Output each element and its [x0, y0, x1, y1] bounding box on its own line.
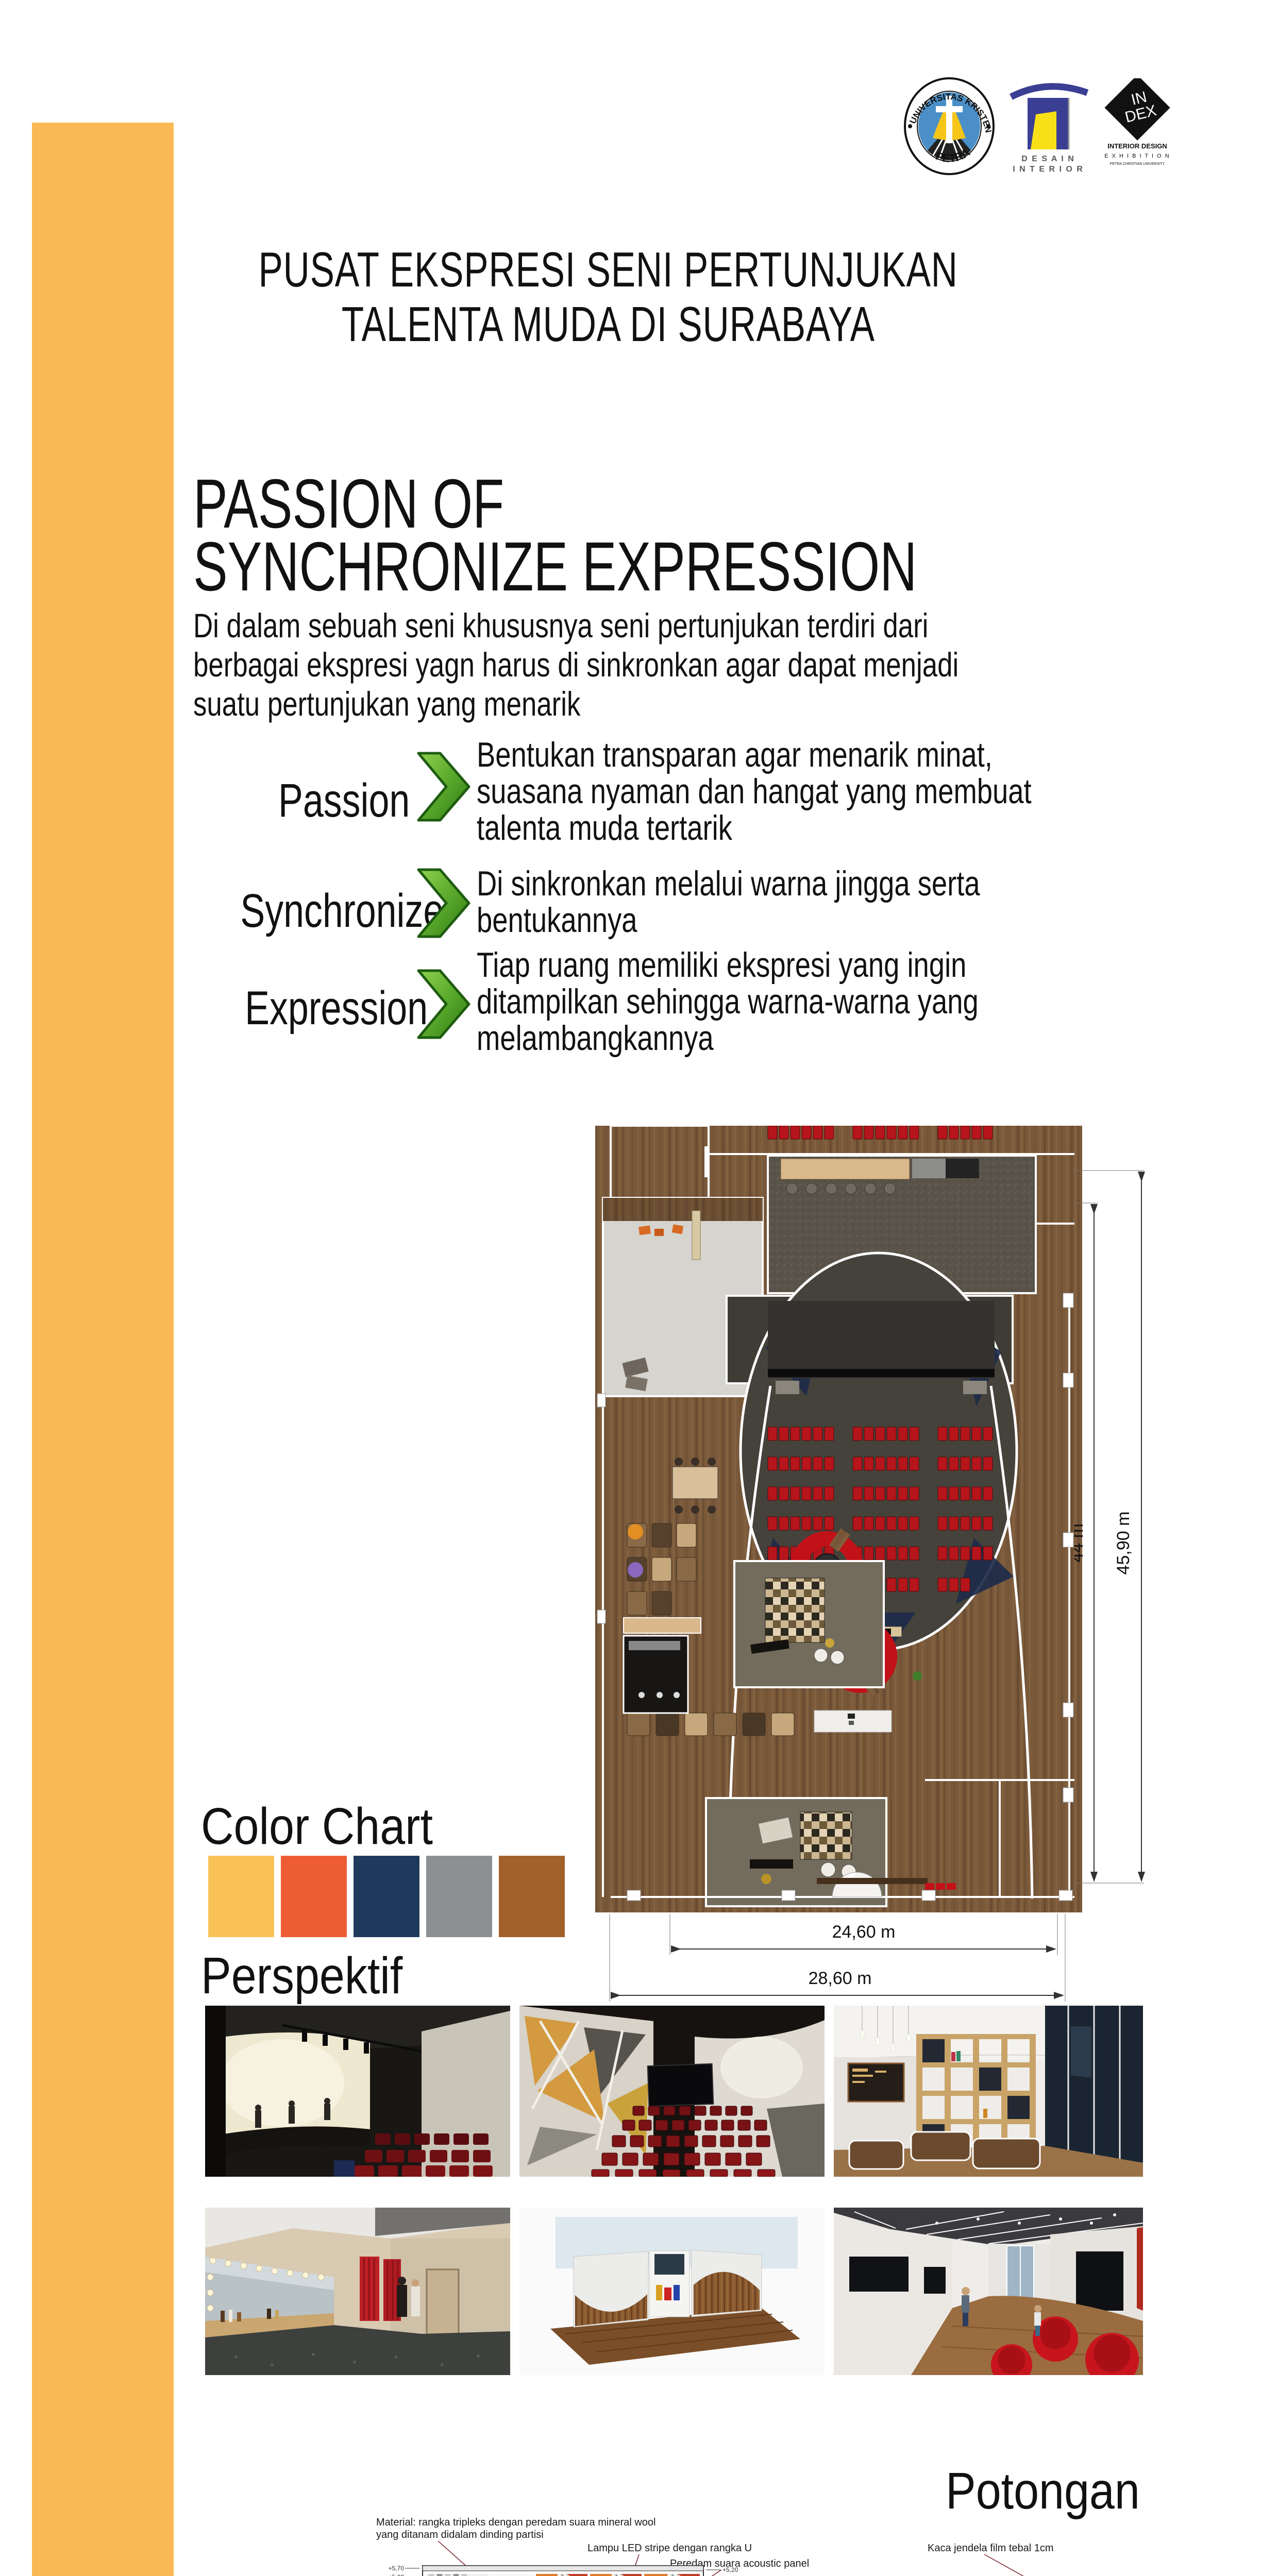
main-title-line2: TALENTA MUDA DI SURABAYA: [0, 298, 1216, 351]
annotation-led: Lampu LED stripe dengan rangka U: [587, 2543, 752, 2554]
logo-desain-interior: D E S A I N I N T E R I O R: [1006, 77, 1091, 175]
floorplan-svg: [595, 1126, 1082, 1912]
plan-practice-room-1: [734, 1561, 884, 1687]
logo-petra: UNIVERSITAS KRISTEN PETRA: [903, 76, 996, 177]
floorplan-dims-right: 44 m 45,90 m: [1074, 1126, 1208, 1929]
plan-purple-ball: [628, 1562, 643, 1578]
item-desc-synchronize-1: Di sinkronkan melalui warna jingga serta: [477, 866, 1106, 902]
floorplan-image: [595, 1126, 1082, 1912]
item-label-passion: Passion: [193, 774, 410, 828]
swatch-orange: [281, 1856, 347, 1937]
plan-entry-band: [817, 1878, 928, 1884]
chevron-arrow-icon: [415, 867, 472, 942]
item-desc-passion-2: suasana nyaman dan hangat yang membuat: [477, 773, 1170, 810]
petra-logo-icon: UNIVERSITAS KRISTEN PETRA: [903, 76, 996, 177]
concept-intro-line2: berbagai ekspresi yagn harus di sinkronk…: [193, 645, 1150, 684]
swatch-gray: [426, 1856, 492, 1937]
concept-intro-line1: Di dalam sebuah seni khususnya seni pert…: [193, 606, 1112, 645]
dim-24-60m: 24,60 m: [832, 1922, 896, 1942]
swatch-yellow: [208, 1856, 274, 1937]
color-chart-heading: Color Chart: [201, 1797, 464, 1856]
index-line1: INTERIOR DESIGN: [1107, 142, 1167, 150]
logo-index: IN DEX INTERIOR DESIGN E X H I B I T I O…: [1103, 78, 1172, 174]
annotation-material-1: Material: rangka tripleks dengan peredam…: [376, 2517, 656, 2528]
index-line3: PETRA CHRISTIAN UNIVERSITY: [1110, 162, 1165, 166]
potongan-sections: Material: rangka tripleks dengan peredam…: [361, 2504, 1278, 2576]
concept-heading-line2: SYNCHRONIZE EXPRESSION: [193, 536, 1171, 598]
desain-line2: I N T E R I O R: [1013, 165, 1084, 174]
annotation-material-2: yang ditanam didalam dinding partisi: [376, 2529, 544, 2540]
index-logo-icon: IN DEX INTERIOR DESIGN E X H I B I T I O…: [1103, 78, 1172, 174]
concept-heading-line1: PASSION OF: [193, 473, 613, 535]
item-desc-passion-1: Bentukan transparan agar menarik minat,: [477, 737, 1121, 773]
perspective-image-2: [519, 2006, 825, 2177]
floorplan-dims-bottom: 24,60 m 28,60 m: [595, 1914, 1183, 2009]
perspective-image-4: [205, 2208, 510, 2375]
item-desc-expression-1: Tiap ruang memiliki ekspresi yang ingin: [477, 947, 1089, 984]
perspektif-heading: Perspektif: [201, 1946, 430, 2006]
annotation-kaca: Kaca jendela film tebal 1cm: [928, 2543, 1054, 2554]
item-desc-expression-2: ditampilkan sehingga warna-warna yang: [477, 984, 1104, 1020]
perspective-image-3: [834, 2006, 1143, 2177]
plan-dining-table: [672, 1467, 718, 1499]
color-chart-swatches: [208, 1856, 574, 1937]
perspective-image-6: [834, 2208, 1143, 2375]
potongan-svg: Material: rangka tripleks dengan peredam…: [361, 2504, 1278, 2576]
swatch-navy: [354, 1856, 419, 1937]
chevron-arrow-icon: [415, 750, 472, 826]
item-desc-synchronize-2: bentukannya: [477, 902, 677, 939]
item-desc-expression-3: melambangkannya: [477, 1020, 773, 1057]
item-label-synchronize: Synchronize: [183, 884, 410, 938]
chevron-arrow-icon: [415, 968, 472, 1043]
concept-intro-line3: suatu pertunjukan yang menarik: [193, 684, 677, 723]
index-line2: E X H I B I T I O N: [1104, 153, 1170, 159]
dim-28-60m: 28,60 m: [809, 1969, 872, 1988]
desain-interior-logo-icon: D E S A I N I N T E R I O R: [1006, 77, 1091, 175]
desain-line1: D E S A I N: [1021, 155, 1075, 163]
dim-44m: 44 m: [1074, 1523, 1087, 1563]
accent-bar: [32, 123, 174, 2576]
poster-root: UNIVERSITAS KRISTEN PETRA D E S A I N I …: [0, 0, 1278, 2576]
swatch-brown: [499, 1856, 565, 1937]
item-label-expression: Expression: [193, 981, 410, 1036]
elev: +5,20: [389, 2573, 405, 2576]
perspective-image-1: [205, 2006, 510, 2177]
section-a: +5,70 +5,20 +4,00 +0,15 0,00 +5,20 +4,45…: [389, 2565, 738, 2576]
plan-orange-ball: [628, 1524, 643, 1539]
main-title-line1: PUSAT EKSPRESI SENI PERTUNJUKAN: [0, 243, 1216, 297]
elev: +5,20: [722, 2566, 738, 2573]
perspective-image-5: [519, 2208, 825, 2375]
dim-45-90m: 45,90 m: [1114, 1512, 1133, 1575]
item-desc-passion-3: talenta muda tertarik: [477, 810, 796, 846]
plan-red-bench: [925, 1883, 956, 1890]
elev: +5,70: [389, 2565, 405, 2572]
